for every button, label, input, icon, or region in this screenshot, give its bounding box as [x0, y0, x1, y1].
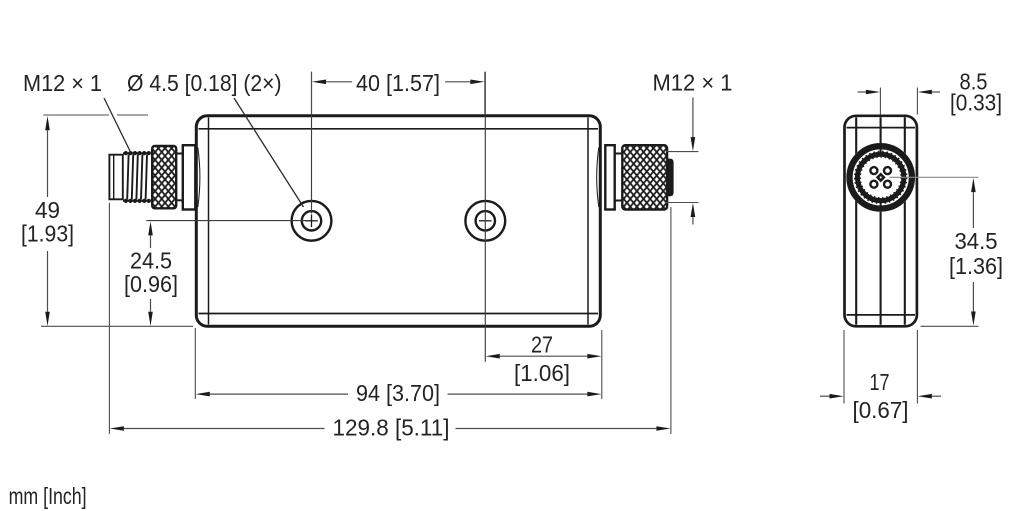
svg-text:24.5: 24.5	[130, 248, 172, 274]
svg-text:[0.67]: [0.67]	[853, 397, 909, 423]
svg-text:M12 × 1: M12 × 1	[653, 70, 733, 96]
svg-text:[1.93]: [1.93]	[21, 221, 74, 247]
svg-text:94 [3.70]: 94 [3.70]	[356, 380, 440, 406]
svg-text:40 [1.57]: 40 [1.57]	[356, 70, 440, 96]
svg-text:34.5: 34.5	[955, 228, 998, 254]
svg-text:Ø 4.5 [0.18] (2×): Ø 4.5 [0.18] (2×)	[127, 70, 282, 96]
svg-text:[0.96]: [0.96]	[124, 271, 178, 297]
svg-text:M12 × 1: M12 × 1	[23, 70, 102, 96]
svg-text:49: 49	[35, 197, 60, 223]
svg-text:17: 17	[870, 369, 890, 395]
svg-text:27: 27	[531, 332, 553, 358]
svg-text:[1.36]: [1.36]	[949, 253, 1003, 279]
svg-text:mm [Inch]: mm [Inch]	[9, 483, 87, 509]
svg-text:[0.33]: [0.33]	[950, 90, 1002, 116]
svg-text:[1.06]: [1.06]	[514, 360, 570, 386]
svg-text:129.8 [5.11]: 129.8 [5.11]	[333, 415, 450, 441]
